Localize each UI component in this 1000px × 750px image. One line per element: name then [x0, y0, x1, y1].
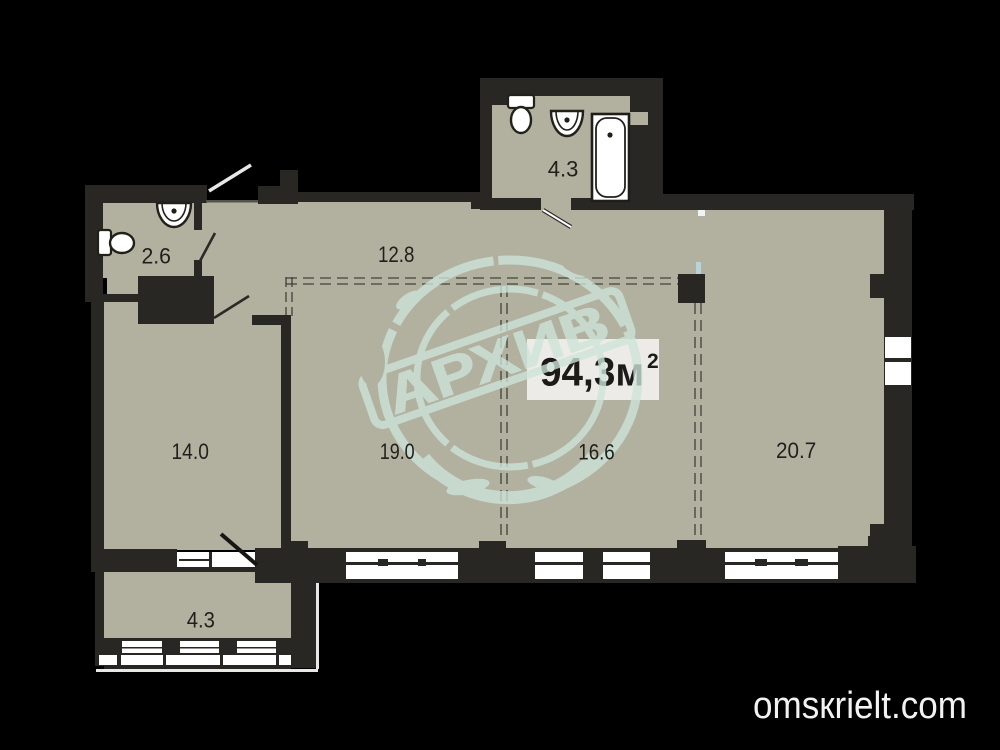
- svg-text:12.8: 12.8: [378, 242, 415, 267]
- svg-text:2.6: 2.6: [141, 244, 171, 269]
- svg-text:20.7: 20.7: [776, 438, 816, 463]
- svg-text:omsкrielt.com: omsкrielt.com: [753, 685, 967, 727]
- svg-text:2: 2: [647, 350, 659, 373]
- svg-text:19.0: 19.0: [380, 439, 415, 464]
- svg-text:4.3: 4.3: [187, 608, 215, 633]
- svg-text:4.3: 4.3: [548, 156, 579, 181]
- svg-text:16.6: 16.6: [578, 440, 614, 465]
- svg-text:14.0: 14.0: [172, 439, 209, 464]
